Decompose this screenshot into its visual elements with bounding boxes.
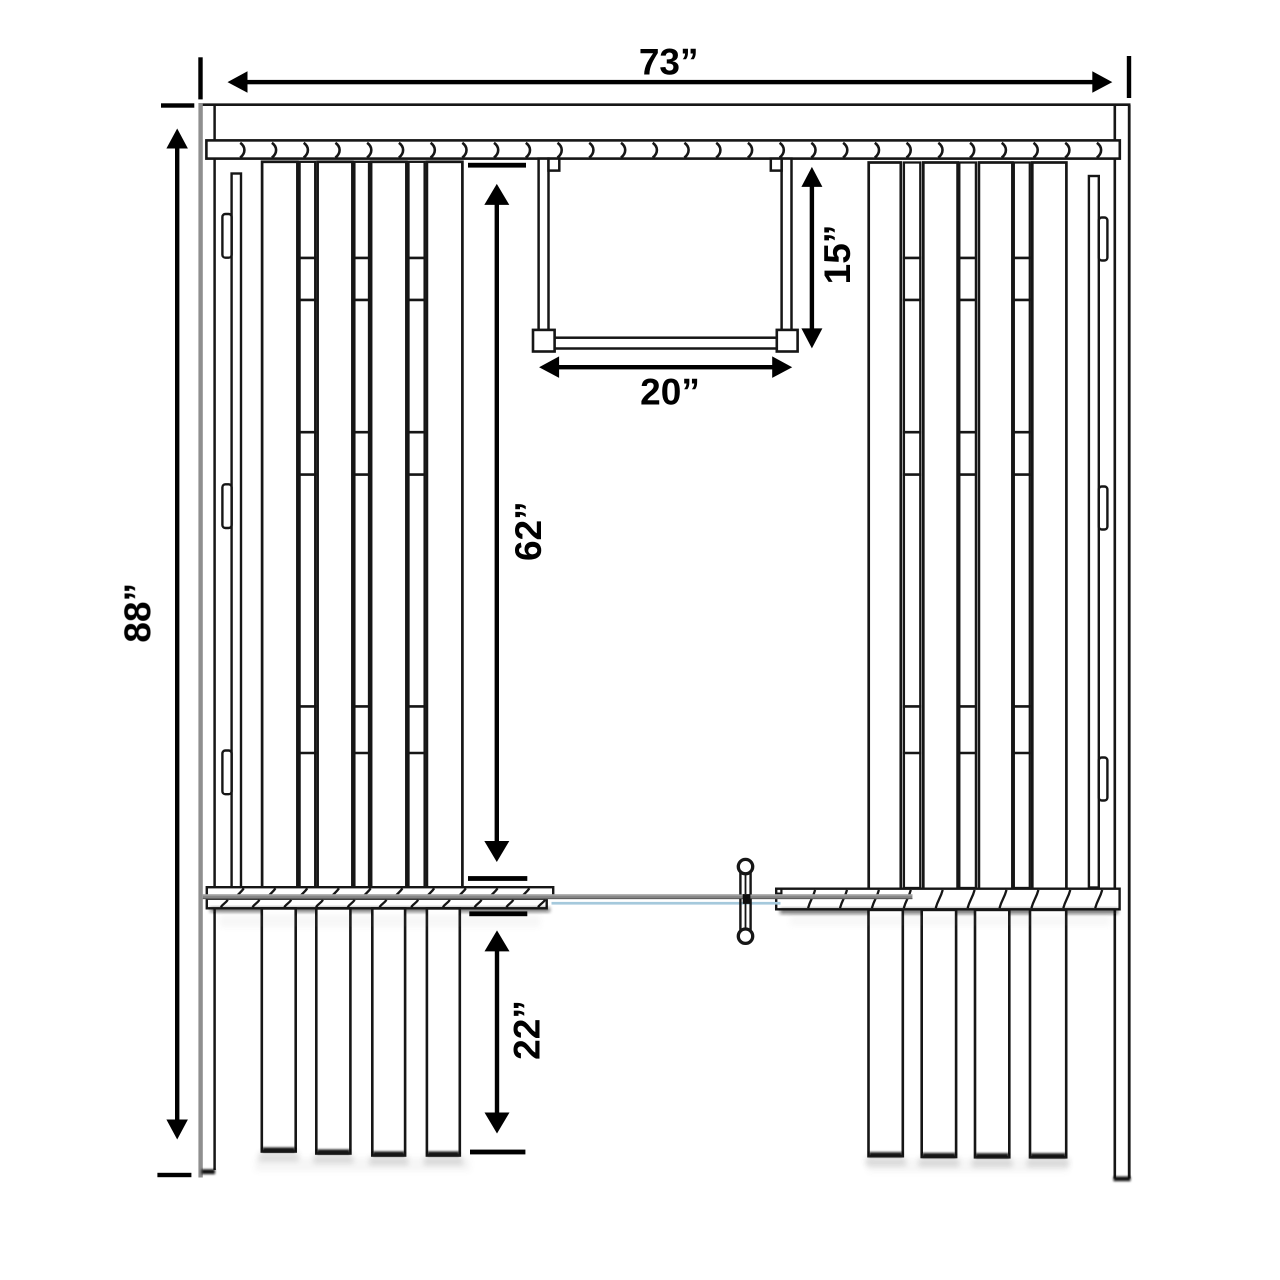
svg-text:88”: 88” (117, 583, 158, 643)
svg-text:62”: 62” (508, 501, 549, 561)
svg-text:20”: 20” (640, 372, 700, 413)
svg-text:15”: 15” (817, 225, 858, 285)
svg-text:22”: 22” (506, 1000, 547, 1060)
svg-text:73”: 73” (639, 42, 699, 83)
